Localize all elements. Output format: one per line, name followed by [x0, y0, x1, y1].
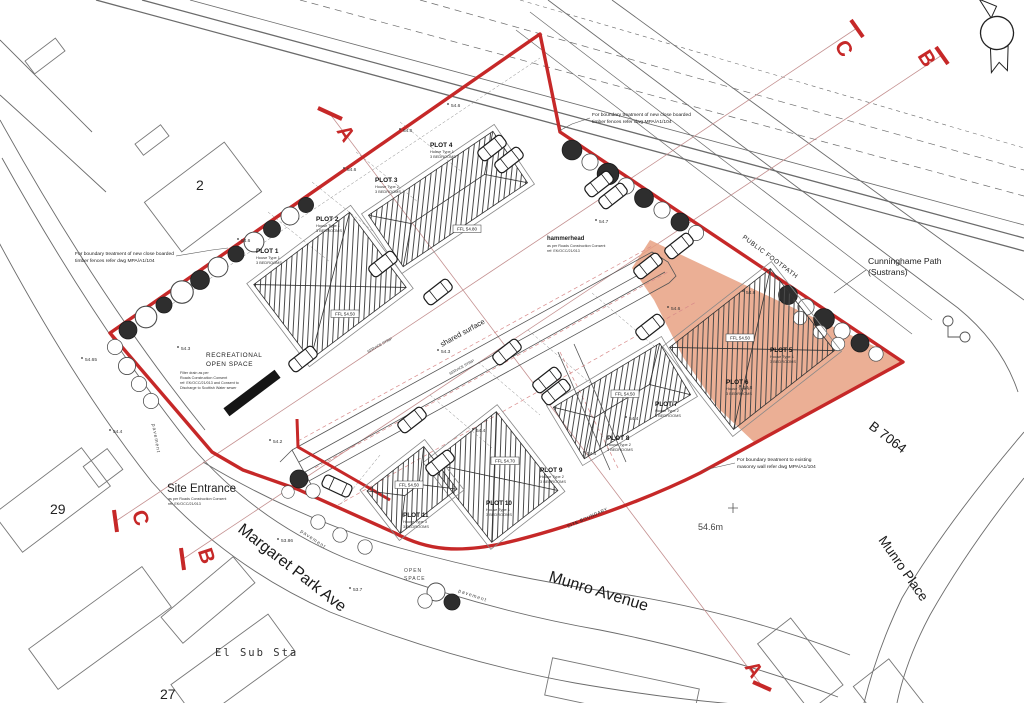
pavement-label: pavement — [150, 423, 161, 454]
site-entrance-sub1: as per Roads Construction Consent — [168, 497, 226, 501]
svg-text:53.7: 53.7 — [353, 587, 363, 593]
tree-icon — [298, 197, 313, 212]
svg-text:54.8: 54.8 — [743, 385, 753, 391]
ffl-label-plot-11: FFL 54.50 — [395, 481, 423, 489]
spot-level: 54.2 — [269, 439, 283, 445]
tree-belt-northeast — [562, 140, 704, 241]
tree-icon — [143, 393, 158, 408]
tree-icon — [654, 202, 670, 218]
site-entrance-sub2: ref: EK/OCC/21/013 — [168, 502, 201, 506]
north-arrow-circle — [977, 13, 1017, 53]
hammerhead-annotation: hammerhead as per Roads Construction Con… — [547, 236, 605, 253]
plot-label-7: PLOT 7 House Type 2 3 BEDROOMS — [655, 401, 681, 418]
car-icon — [396, 406, 428, 435]
section-marker-a-north: A — [318, 108, 359, 146]
svg-text:54.4: 54.4 — [587, 451, 597, 457]
plot-label-3: PLOT 3 House Type 2 3 BEDROOMS — [375, 177, 401, 194]
tree-icon — [263, 220, 280, 237]
utility-pole-symbols — [943, 316, 970, 342]
plot-beds: 3 BEDROOMS — [430, 154, 456, 159]
tree-icon — [282, 486, 295, 499]
plot-beds: 3 BEDROOMS — [540, 479, 566, 484]
plot-name: PLOT 8 — [607, 435, 630, 442]
tree-icon — [635, 189, 654, 208]
svg-text:FFL 54.50: FFL 54.50 — [335, 312, 355, 317]
ffl-label-plots-9-10: FFL 54.70 — [491, 457, 519, 465]
note-line: Roads Construction Consent — [180, 376, 227, 380]
building-2-label: 2 — [196, 177, 204, 193]
tree-icon — [671, 213, 689, 231]
pavement-label: pavement — [299, 529, 327, 551]
svg-text:54.6: 54.6 — [403, 128, 413, 134]
note-line: ref: EK/OCC/21/013 and Consent to — [180, 381, 239, 385]
street-label-margaret-park-ave: Margaret Park Ave — [235, 521, 350, 616]
ffl-label-plots-3-4: FFL 54.80 — [453, 225, 481, 233]
svg-text:54.7: 54.7 — [599, 219, 609, 225]
tree-icon — [358, 540, 372, 554]
note-line: For boundary treatment to existing — [737, 457, 812, 463]
site-boundary-label: SITE BOUNDARY — [566, 506, 608, 528]
svg-text:C: C — [127, 507, 154, 529]
svg-text:A: A — [332, 121, 360, 146]
tree-icon — [156, 297, 172, 313]
street-label-munro-avenue: Munro Avenue — [547, 569, 650, 615]
section-marker-b-north: B — [913, 46, 948, 71]
svg-text:54.2: 54.2 — [273, 439, 283, 445]
filter-drain — [223, 370, 280, 417]
tree-icon — [228, 246, 244, 262]
ffl-label-plots-5-6: FFL 54.50 — [726, 334, 754, 342]
shared-surface-label: shared surface — [439, 317, 487, 349]
svg-text:FFL 54.80: FFL 54.80 — [457, 227, 477, 232]
tree-icon — [290, 470, 308, 488]
svg-text:FFL 54.50: FFL 54.50 — [730, 336, 750, 341]
site-entrance-annotation: Site Entrance as per Roads Construction … — [167, 483, 236, 506]
svg-text:B: B — [193, 545, 220, 567]
spot-level: 54.6 — [447, 103, 461, 109]
plot-label-4: PLOT 4 House Type 1 3 BEDROOMS — [430, 142, 456, 159]
hammerhead-label: hammerhead — [547, 236, 585, 242]
open-space-line1: OPEN — [404, 568, 422, 574]
svg-text:54.6: 54.6 — [347, 167, 357, 173]
plot-name: PLOT 2 — [316, 216, 339, 223]
spot-level: 54.4 — [109, 429, 123, 435]
cunninghame-line2: (Sustrans) — [868, 267, 908, 277]
car-icon — [422, 278, 454, 307]
plot-name: PLOT 9 — [540, 467, 563, 474]
svg-text:54.4: 54.4 — [113, 429, 123, 435]
svg-text:C: C — [830, 36, 858, 61]
building-27-label: 27 — [160, 686, 176, 702]
cunninghame-annotation: Cunninghame Path (Sustrans) — [834, 256, 942, 293]
service-strip-label: SERVICE STRIP — [367, 337, 394, 354]
tree-icon — [107, 339, 122, 354]
north-arrow — [972, 0, 1022, 75]
plot-name: PLOT 11 — [403, 512, 429, 519]
ffl-label-plots-7-8: FFL 54.50 — [611, 390, 639, 398]
plot-label-9: PLOT 9 House Type 2 3 BEDROOMS — [540, 467, 566, 484]
tree-icon — [834, 323, 850, 339]
tree-icon — [208, 257, 228, 277]
pavement-label: pavement — [457, 588, 487, 603]
svg-text:53.86: 53.86 — [281, 538, 293, 544]
tree-icon — [191, 271, 210, 290]
note-line: Discharge to Scottish Water sewer — [180, 386, 237, 390]
ffl-label-plots-1-2: FFL 54.50 — [331, 310, 359, 318]
note-line: For boundary treatment of new close boar… — [592, 112, 691, 118]
plot-label-2: PLOT 2 House Type 1 3 BEDROOMS — [316, 216, 342, 233]
spot-level: 54.65 — [81, 357, 97, 363]
note-line: timber fences refer dwg MPA/A1/104 — [75, 258, 155, 264]
svg-text:54.3: 54.3 — [181, 346, 191, 352]
svg-text:FFL 54.50: FFL 54.50 — [615, 392, 635, 397]
tree-icon — [281, 207, 299, 225]
plot-beds: 3 BEDROOMS — [607, 447, 633, 452]
tree-icon — [118, 357, 135, 374]
tree-icon — [582, 154, 598, 170]
street-trees-margaret-park — [311, 515, 372, 554]
svg-text:FFL 54.70: FFL 54.70 — [495, 459, 515, 464]
svg-text:54.3: 54.3 — [441, 349, 451, 355]
svg-text:54.8: 54.8 — [746, 290, 756, 296]
svg-text:A: A — [740, 657, 768, 682]
car-icon — [491, 338, 523, 367]
plot-name: PLOT 3 — [375, 177, 398, 184]
site-plan-canvas: N Margaret Park Ave Munro Avenue Munro P… — [0, 0, 1024, 703]
tree-icon — [306, 484, 320, 498]
boundary-note-north: For boundary treatment of new close boar… — [559, 112, 691, 131]
section-marker-c-south: C — [114, 507, 153, 532]
plot-name: PLOT 6 — [726, 379, 749, 386]
tree-icon — [418, 594, 432, 608]
filter-drain-note: Filter drain as per Roads Construction C… — [180, 371, 239, 390]
tree-icon — [131, 376, 146, 391]
boundary-note-west: For boundary treatment of new close boar… — [75, 248, 228, 264]
tree-icon — [171, 281, 194, 304]
plot-label-11: PLOT 11 House Type 3 3 BEDROOMS — [403, 512, 429, 529]
plot-beds: 3 BEDROOMS — [256, 260, 282, 265]
plot-name: PLOT 5 — [770, 347, 793, 354]
street-label-munro-place: Munro Place — [876, 533, 932, 604]
hammerhead-sub2: ref: EK/OCC/21/013 — [547, 249, 580, 253]
svg-text:FFL 54.50: FFL 54.50 — [399, 483, 419, 488]
note-line: timber fences refer dwg MPA/A1/104 — [592, 119, 672, 125]
note-line: For boundary treatment of new close boar… — [75, 251, 174, 257]
el-sub-sta-label: El Sub Sta — [215, 647, 298, 659]
tree-icon — [444, 594, 460, 610]
spot-level: 54.3 — [177, 346, 191, 352]
tree-icon — [311, 515, 325, 529]
plot-name: PLOT 7 — [655, 401, 678, 408]
recreational-line1: RECREATIONAL — [206, 352, 262, 359]
svg-text:54.4: 54.4 — [476, 428, 486, 434]
plot-beds: 3 BEDROOMS — [726, 391, 752, 396]
spot-level: 54.3 — [437, 349, 451, 355]
plot-beds: 3 BEDROOMS — [655, 413, 681, 418]
svg-text:54.65: 54.65 — [85, 357, 97, 363]
trees-open-space — [418, 583, 460, 610]
building-29-label: 29 — [50, 501, 66, 517]
spot-level: 53.7 — [349, 587, 363, 593]
cunninghame-line1: Cunninghame Path — [868, 256, 942, 266]
hammerhead-sub1: as per Roads Construction Consent — [547, 244, 605, 248]
plot-beds: 3 BEDROOMS — [486, 512, 512, 517]
section-marker-a-south: A — [740, 657, 771, 690]
plot-name: PLOT 4 — [430, 142, 453, 149]
open-space-line2: SPACE — [404, 576, 426, 582]
spot-level: 54.7 — [595, 219, 609, 225]
plot-beds: 3 BEDROOMS — [316, 228, 342, 233]
street-label-b7064: B 7064 — [866, 418, 910, 456]
note-line: Filter drain as per — [180, 371, 209, 375]
section-marker-c-north: C — [830, 20, 863, 61]
plot-label-1: PLOT 1 House Type 1 3 BEDROOMS — [256, 248, 282, 265]
tree-icon — [119, 321, 137, 339]
plot-beds: 3 BEDROOMS — [403, 524, 429, 529]
tree-icon — [333, 528, 347, 542]
svg-text:54.6: 54.6 — [241, 238, 251, 244]
plot-label-10: PLOT 10 House Type 1 3 BEDROOMS — [486, 500, 512, 517]
road-annotations: shared surface SERVICE STRIP SERVICE STR… — [150, 317, 609, 604]
tree-icon — [562, 140, 582, 160]
site-plan-drawing: N Margaret Park Ave Munro Avenue Munro P… — [0, 0, 1024, 703]
plot-name: PLOT 1 — [256, 248, 279, 255]
site-entrance-label: Site Entrance — [167, 483, 236, 495]
tree-icon — [869, 347, 883, 361]
benchmark: 54.6m — [698, 503, 738, 532]
spot-level: 53.86 — [277, 538, 293, 544]
svg-text:54.6: 54.6 — [451, 103, 461, 109]
section-marker-b-south: B — [181, 545, 219, 570]
benchmark-value: 54.6m — [698, 522, 723, 532]
tree-icon — [135, 306, 157, 328]
tree-icon — [851, 334, 869, 352]
plot-beds: 3 BEDROOMS — [770, 359, 796, 364]
note-line: masonry wall refer dwg MPA/A1/104 — [737, 464, 816, 470]
svg-text:54.4: 54.4 — [629, 416, 639, 422]
plot-name: PLOT 10 — [486, 500, 512, 507]
recreational-line2: OPEN SPACE — [206, 361, 253, 368]
svg-text:54.6: 54.6 — [671, 306, 681, 312]
plot-beds: 3 BEDROOMS — [375, 189, 401, 194]
